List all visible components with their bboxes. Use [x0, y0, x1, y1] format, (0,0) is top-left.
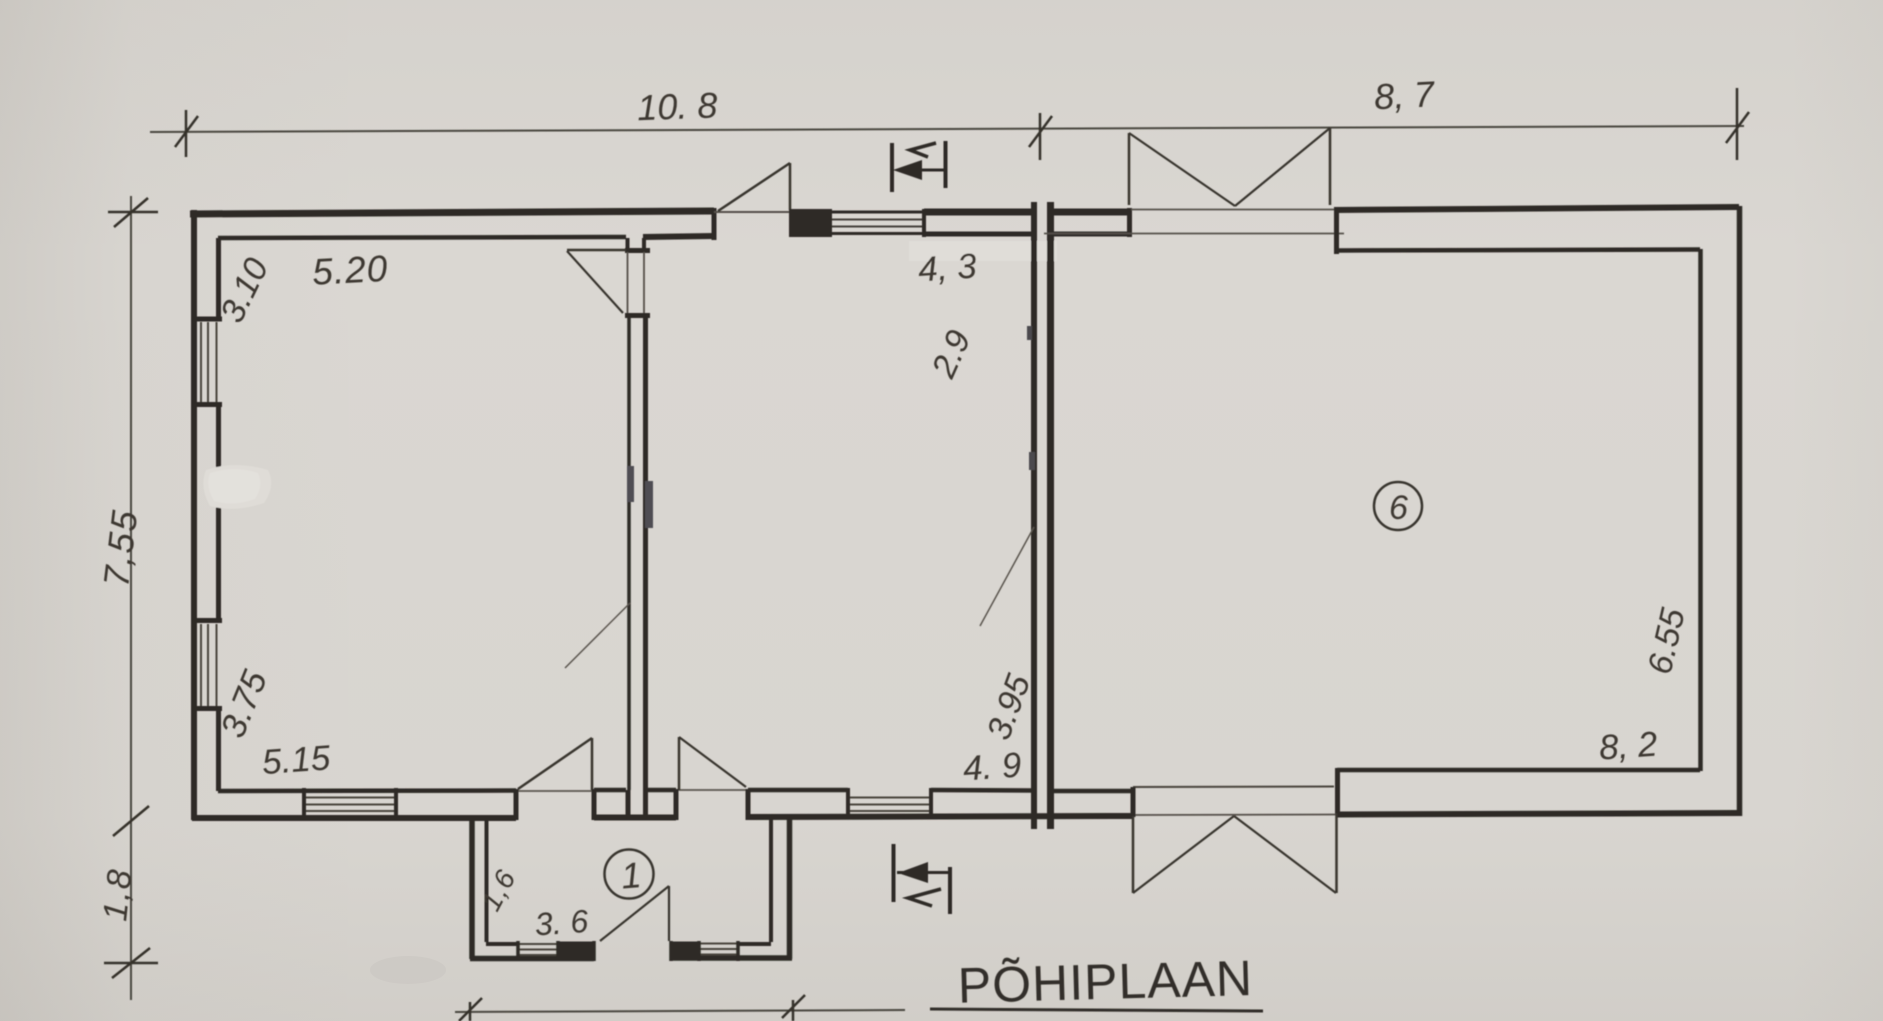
svg-text:5.15: 5.15 [261, 738, 332, 782]
svg-text:4, 3: 4, 3 [917, 246, 978, 289]
svg-text:PÕHIPLAAN: PÕHIPLAAN [957, 950, 1254, 1014]
svg-text:3. 6: 3. 6 [534, 903, 590, 943]
svg-text:6: 6 [1389, 489, 1408, 527]
svg-text:5.20: 5.20 [311, 248, 389, 293]
svg-text:1: 1 [619, 854, 643, 897]
svg-text:10. 8: 10. 8 [637, 84, 718, 128]
svg-text:8, 7: 8, 7 [1373, 73, 1437, 117]
svg-text:4. 9: 4. 9 [962, 746, 1023, 789]
svg-text:1,8: 1,8 [96, 866, 139, 923]
svg-text:8, 2: 8, 2 [1598, 725, 1659, 768]
